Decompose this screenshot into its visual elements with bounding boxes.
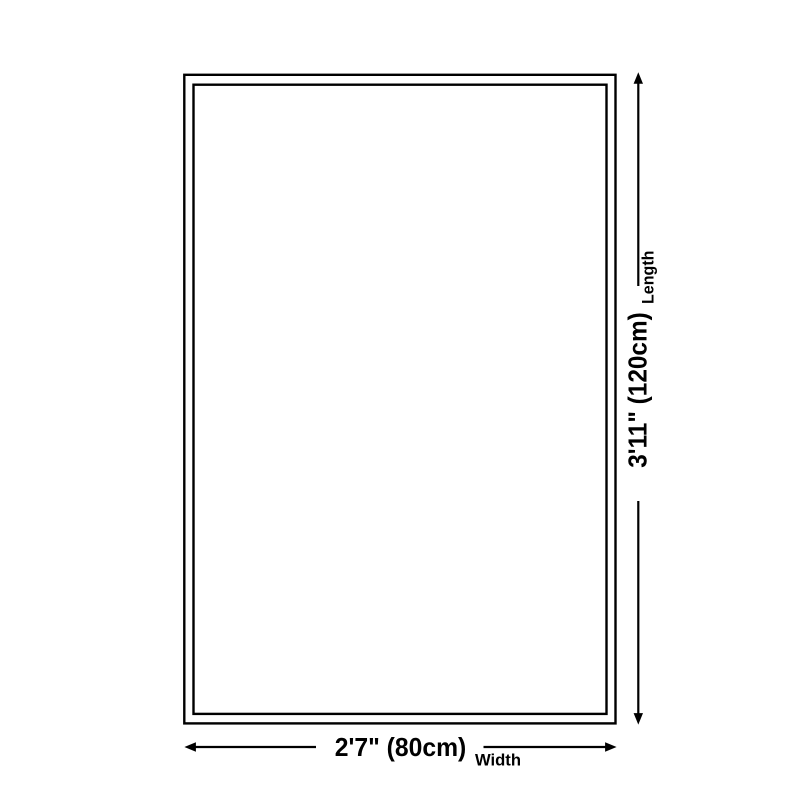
svg-text:Length: Length — [640, 251, 658, 305]
svg-text:Width: Width — [475, 752, 521, 770]
svg-text:3'11" (120cm): 3'11" (120cm) — [623, 312, 653, 468]
svg-text:2'7" (80cm): 2'7" (80cm) — [335, 732, 467, 762]
